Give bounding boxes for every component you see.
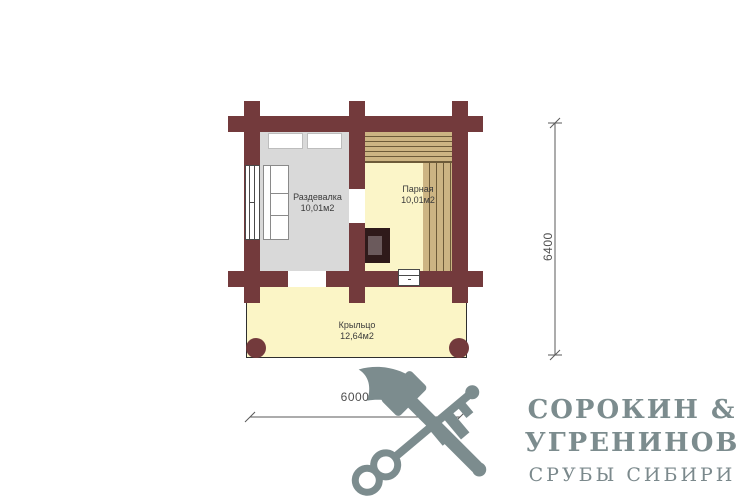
axe-and-key-logo-icon	[341, 368, 513, 502]
sauna-bench-right	[423, 163, 452, 271]
door-step-parnaya-porch	[398, 269, 420, 286]
room-name: Раздевалка	[275, 192, 360, 203]
window-center-tick	[249, 202, 255, 203]
window	[245, 165, 260, 240]
logo: СОРОКИН & УГРЕНИНОВ СРУБЫ СИБИРИ	[511, 394, 753, 488]
sofa-cushion-divider	[270, 215, 288, 216]
sofa-backrest	[270, 166, 271, 239]
room-area: 12,64м2	[312, 331, 402, 342]
room-name: Парная	[383, 184, 453, 195]
sauna-stove-door	[368, 236, 382, 255]
shelf	[268, 133, 303, 149]
room-label-parnaya: Парная 10,01м2	[383, 184, 453, 206]
room-area: 10,01м2	[275, 203, 360, 214]
floor-plan-page: Раздевалка 10,01м2 Парная 10,01м2 Крыльц…	[0, 0, 753, 502]
logo-subtitle: СРУБЫ СИБИРИ	[511, 462, 753, 488]
porch-column-right	[449, 338, 469, 358]
door-opening-razdevalka-porch	[288, 271, 326, 287]
room-label-kryltso: Крыльцо 12,64м2	[312, 320, 402, 342]
sauna-bench-top	[365, 132, 452, 163]
logo-title-line2: УГРЕНИНОВ	[511, 427, 753, 460]
step-tick	[408, 279, 411, 280]
room-label-razdevalka: Раздевалка 10,01м2	[275, 192, 360, 214]
axe-icon	[347, 344, 499, 496]
shelf	[307, 133, 342, 149]
step-line	[399, 275, 419, 276]
dimension-height-label: 6400	[541, 227, 555, 261]
porch-column-left	[246, 338, 266, 358]
logo-title-line1: СОРОКИН &	[511, 394, 753, 427]
wall-right	[452, 101, 468, 303]
room-name: Крыльцо	[312, 320, 402, 331]
room-area: 10,01м2	[383, 195, 453, 206]
